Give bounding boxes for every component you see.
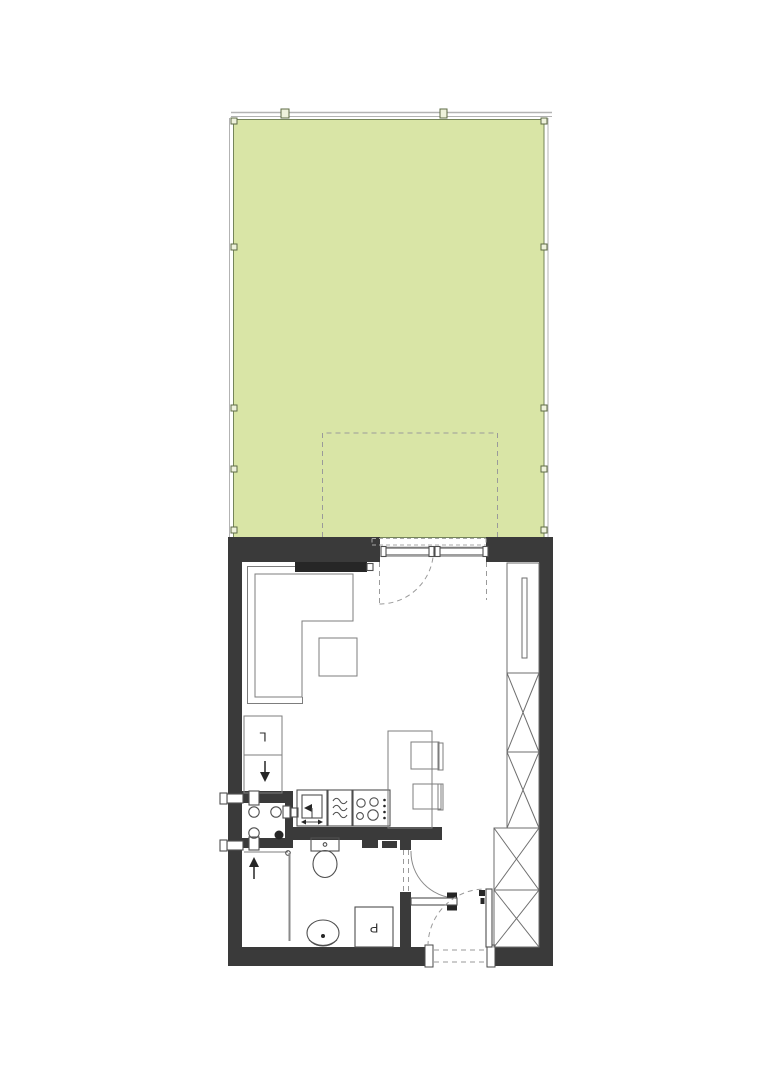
bathroom-door: [404, 850, 458, 911]
pipe-riser: [249, 791, 259, 805]
lawn: [234, 120, 545, 538]
headboard-bar: [295, 562, 367, 572]
slope-arrow: [249, 857, 259, 879]
garden-area: [230, 109, 553, 538]
burner-icon: [368, 810, 378, 820]
lintel-dashed: [372, 539, 486, 546]
wave-icon: [333, 798, 347, 803]
dishwasher: [328, 790, 352, 826]
sliding-panel-right: [436, 548, 487, 555]
cabinet-front-line: [522, 578, 527, 658]
pipe-connector: [283, 806, 290, 818]
toilet: [311, 838, 339, 878]
wardrobe-section-wide: [494, 828, 539, 890]
garden-sliding-door: [372, 539, 488, 605]
wall-bottom-left: [228, 947, 427, 966]
chair: [411, 742, 439, 769]
burner-icon: [357, 799, 365, 807]
pipe-wall-crossing: [227, 841, 243, 850]
bathroom: P: [244, 838, 457, 947]
floor-plan-page: L: [0, 0, 777, 1080]
sink-dimension-marks: [301, 820, 323, 825]
door-swing-arc: [411, 851, 456, 898]
fridge-unit: L: [244, 716, 282, 755]
wardrobe-section: [507, 752, 539, 828]
arrow-down-icon: [260, 772, 270, 782]
sofa-bed: [248, 562, 374, 704]
cooktop: [353, 790, 390, 826]
washing-machine-label: P: [370, 921, 379, 936]
wall-bottom-right: [494, 947, 553, 966]
arrow-up-icon: [249, 857, 259, 867]
walls: [228, 537, 553, 966]
washbasin: [307, 920, 339, 946]
wardrobe-column: [494, 563, 539, 947]
kitchen-counter: [297, 790, 390, 826]
faucet-icon: [304, 804, 312, 812]
fence-post: [281, 109, 289, 118]
door-leaf: [486, 889, 492, 947]
wardrobe-section: [507, 673, 539, 752]
wardrobe-section-wide: [494, 890, 539, 947]
sliding-panel-left: [382, 548, 433, 555]
fridge-label: L: [259, 730, 266, 745]
dining-set: [388, 731, 443, 828]
floor-plan-canvas: L: [0, 0, 777, 1080]
bath-door-stub-top: [400, 840, 411, 850]
coffee-table: [319, 638, 357, 676]
burner-icon: [370, 798, 378, 806]
toilet-bowl: [313, 851, 337, 878]
wall-left: [228, 537, 242, 966]
pipe-riser: [249, 837, 259, 850]
dining-table: [388, 731, 432, 828]
washing-machine: P: [355, 907, 393, 947]
wall-right: [539, 537, 553, 966]
door-leaf: [411, 898, 457, 905]
wave-icon: [333, 812, 347, 817]
burner-icon: [357, 813, 364, 820]
drain-icon: [275, 831, 284, 840]
pocket-door-track: [362, 839, 378, 848]
fence-post: [440, 109, 447, 118]
pipe-wall-crossing: [227, 794, 243, 803]
cabinet-with-duct: [244, 755, 282, 793]
tall-cabinet: [507, 563, 539, 673]
valve-icon: [249, 807, 259, 817]
chair: [413, 784, 441, 809]
wave-icon: [333, 805, 347, 810]
pocket-door-track: [382, 841, 397, 848]
door-jamb: [487, 945, 495, 967]
door-swing-arc: [380, 550, 434, 604]
bath-door-stub-bottom: [400, 892, 411, 947]
valve-icon: [271, 807, 281, 817]
door-jamb: [425, 945, 433, 967]
wall-top-left: [228, 537, 380, 562]
fence-line: [231, 109, 552, 118]
